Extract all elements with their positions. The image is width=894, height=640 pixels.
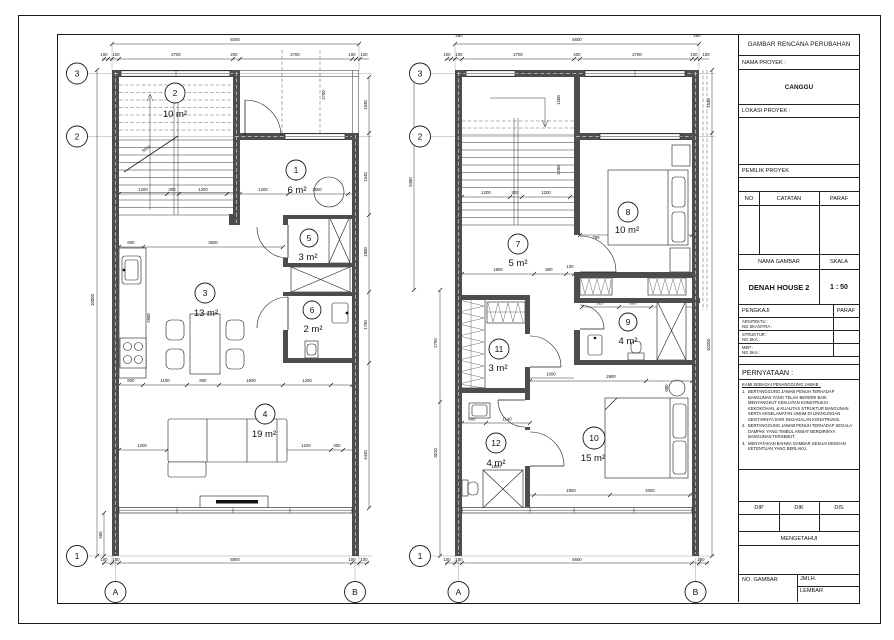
mep-ska-label: NO SKA :	[742, 350, 859, 355]
svg-text:2700: 2700	[321, 90, 326, 100]
pengkaji-row-mep: MEP : NO SKA :	[739, 344, 859, 357]
pengkaji-spacer	[739, 357, 859, 365]
no-gambar-label: NO. GAMBAR	[739, 575, 800, 602]
svg-text:200: 200	[230, 52, 238, 57]
mengetahui-row: MENGETAHUI	[739, 532, 859, 546]
pemilik-proyek-row: PEMILIK PROYEK	[739, 165, 859, 178]
right-stairs	[462, 98, 574, 225]
svg-text:1900: 1900	[566, 488, 576, 493]
svg-text:12: 12	[491, 438, 501, 448]
svg-text:100: 100	[100, 557, 108, 562]
svg-text:10 m²: 10 m²	[163, 109, 187, 120]
pengkaji-header-row: PENGKAJI PARAF	[739, 305, 859, 318]
pernyataan-item-3: 3. MENYATAKAN BAHWA GAMBAR SESUAI DENGAN…	[742, 441, 856, 452]
jmlh-label: JMLH.	[797, 575, 859, 587]
svg-text:2900: 2900	[606, 374, 616, 379]
pengkaji-label: PENGKAJI	[739, 305, 836, 317]
nama-proyek-row: NAMA PROYEK :	[739, 56, 859, 70]
svg-text:5800: 5800	[230, 557, 240, 562]
pengkaji-row-arsitektur: ARSITEKTU : NO SKA/STRA :	[739, 318, 859, 331]
svg-text:2: 2	[75, 132, 80, 142]
svg-text:1200: 1200	[137, 443, 147, 448]
svg-text:1630: 1630	[363, 100, 368, 110]
svg-text:3 m²: 3 m²	[299, 252, 318, 263]
svg-text:600: 600	[127, 240, 135, 245]
left-sofa	[168, 419, 287, 477]
pernyataan-item-1: 1. BERTANGGUNG JAWAB PENUH TERHADAP BANG…	[742, 389, 856, 422]
svg-text:6000: 6000	[230, 37, 240, 42]
svg-text:200: 200	[573, 52, 581, 57]
svg-text:6: 6	[310, 305, 315, 315]
svg-text:1200: 1200	[481, 190, 491, 195]
svg-text:3: 3	[75, 69, 80, 79]
svg-text:1630: 1630	[706, 98, 711, 108]
svg-text:600: 600	[127, 378, 135, 383]
project-name: CANGGU	[785, 84, 814, 91]
dik-label: DIK	[779, 502, 819, 514]
pernyataan-empty	[739, 470, 859, 502]
pengkaji-paraf-label: PARAF	[833, 305, 859, 317]
lokasi-proyek-row: LOKASI PROYEK :	[739, 105, 859, 118]
mengetahui-empty	[739, 546, 859, 575]
svg-text:1790: 1790	[363, 320, 368, 330]
svg-text:10: 10	[589, 433, 599, 443]
svg-text:1: 1	[75, 551, 80, 561]
svg-text:1000: 1000	[546, 372, 556, 377]
svg-text:1200: 1200	[541, 190, 551, 195]
left-walls	[112, 70, 359, 556]
left-stairs	[119, 85, 233, 215]
svg-text:1100: 1100	[160, 378, 170, 383]
svg-text:3: 3	[418, 69, 423, 79]
arsitektur-ska-label: NO SKA/STRA :	[742, 324, 859, 329]
svg-text:300: 300	[168, 187, 176, 192]
svg-text:2 m²: 2 m²	[304, 324, 323, 335]
sheet-title: GAMBAR RENCANA PERUBAHAN	[748, 41, 851, 48]
svg-text:280: 280	[697, 557, 705, 562]
svg-text:2: 2	[173, 88, 178, 98]
svg-text:1200: 1200	[556, 95, 561, 105]
svg-text:2280: 2280	[556, 165, 561, 175]
svg-text:6 m²: 6 m²	[288, 185, 307, 196]
svg-text:4440: 4440	[363, 450, 368, 460]
dis-label: DIS	[819, 502, 859, 514]
svg-text:2700: 2700	[632, 52, 642, 57]
nama-proyek-label: NAMA PROYEK :	[742, 60, 786, 66]
dip-label: DIP	[739, 502, 779, 514]
svg-text:5600: 5600	[572, 557, 582, 562]
svg-text:3450: 3450	[141, 144, 152, 154]
svg-text:3: 3	[203, 288, 208, 298]
svg-text:100: 100	[566, 264, 574, 269]
svg-text:100: 100	[702, 52, 710, 57]
catatan-header-row: NO CATATAN PARAF	[739, 192, 859, 206]
svg-text:100: 100	[112, 557, 120, 562]
svg-text:1640: 1640	[363, 172, 368, 182]
left-tv-console	[200, 496, 268, 508]
struktur-ska-label: NO SKA :	[742, 337, 859, 342]
drawing-sheet: 6000 100 100 2700 200 2700 100 100 100 1…	[0, 0, 894, 640]
mengetahui-label: MENGETAHUI	[781, 536, 818, 542]
col-no: NO	[739, 192, 759, 205]
nama-gambar-value-row: DENAH HOUSE 2 1 : 50	[739, 270, 859, 305]
svg-text:2700: 2700	[171, 52, 181, 57]
pemilik-proyek-label: PEMILIK PROYEK	[742, 168, 789, 174]
svg-text:1800: 1800	[493, 267, 503, 272]
svg-text:600: 600	[664, 384, 669, 392]
svg-text:100: 100	[360, 52, 368, 57]
right-bath9-fixtures	[588, 301, 686, 360]
pernyataan-label: PERNYATAAN :	[742, 368, 793, 377]
svg-text:1200: 1200	[258, 187, 268, 192]
svg-text:4: 4	[263, 409, 268, 419]
svg-text:5 m²: 5 m²	[509, 258, 528, 269]
svg-text:13 m²: 13 m²	[194, 308, 218, 319]
nama-proyek-value-cell: CANGGU	[739, 70, 859, 105]
left-plan: 6000 100 100 2700 200 2700 100 100 100 1…	[67, 37, 373, 603]
svg-text:B: B	[693, 587, 699, 597]
pernyataan-body: KAMI SEBAGAI PENANGGUNG JAWAB : 1. BERTA…	[739, 380, 859, 470]
sign-body-row	[739, 515, 859, 532]
svg-text:100: 100	[348, 52, 356, 57]
svg-text:10200: 10200	[706, 338, 711, 351]
pemilik-proyek-value-cell	[739, 178, 859, 192]
svg-text:1200: 1200	[198, 187, 208, 192]
drawing-name: DENAH HOUSE 2	[739, 270, 819, 304]
svg-text:1600: 1600	[246, 378, 256, 383]
right-closets8	[580, 278, 686, 295]
svg-text:7: 7	[516, 239, 521, 249]
svg-text:100: 100	[455, 557, 463, 562]
pernyataan-header: PERNYATAAN :	[739, 365, 859, 380]
svg-text:2700: 2700	[290, 52, 300, 57]
svg-text:10000: 10000	[90, 293, 95, 306]
pernyataan-subheader: KAMI SEBAGAI PENANGGUNG JAWAB :	[742, 382, 856, 387]
title-block: GAMBAR RENCANA PERUBAHAN NAMA PROYEK : C…	[738, 34, 859, 602]
sign-header-row: DIP DIK DIS	[739, 502, 859, 515]
svg-text:800: 800	[199, 378, 207, 383]
svg-text:3 m²: 3 m²	[489, 363, 508, 374]
skala-label: SKALA	[819, 255, 859, 269]
col-paraf: PARAF	[819, 192, 859, 205]
svg-text:2000: 2000	[645, 488, 655, 493]
svg-text:2700: 2700	[513, 52, 523, 57]
svg-text:280: 280	[693, 34, 701, 38]
svg-text:800: 800	[545, 267, 553, 272]
drawing-scale: 1 : 50	[819, 270, 859, 304]
plans-canvas: 6000 100 100 2700 200 2700 100 100 100 1…	[57, 34, 738, 603]
svg-text:1220: 1220	[301, 443, 311, 448]
svg-text:300: 300	[333, 443, 341, 448]
svg-text:9: 9	[626, 317, 631, 327]
svg-text:1200: 1200	[138, 187, 148, 192]
svg-text:19 m²: 19 m²	[252, 429, 276, 440]
svg-text:100: 100	[348, 557, 356, 562]
svg-text:4 m²: 4 m²	[487, 458, 506, 469]
left-kitchen	[119, 248, 146, 378]
lokasi-proyek-value-cell	[739, 118, 859, 165]
svg-text:100: 100	[443, 557, 451, 562]
svg-text:950: 950	[98, 531, 103, 539]
svg-text:2600: 2600	[146, 313, 151, 323]
svg-text:100: 100	[443, 52, 451, 57]
right-bed10	[605, 380, 688, 478]
lembar-label: LEMBAR	[797, 587, 859, 602]
svg-text:100: 100	[100, 52, 108, 57]
left-dining-set	[166, 314, 244, 374]
nama-gambar-label: NAMA GAMBAR	[739, 255, 819, 269]
col-catatan: CATATAN	[759, 192, 819, 205]
svg-text:100: 100	[455, 52, 463, 57]
lokasi-proyek-label: LOKASI PROYEK :	[742, 108, 790, 114]
svg-text:B: B	[352, 587, 358, 597]
svg-text:8: 8	[626, 207, 631, 217]
svg-text:2: 2	[418, 132, 423, 142]
pengkaji-row-struktur: STRUKTUR : NO SKA :	[739, 331, 859, 344]
title-block-header: GAMBAR RENCANA PERUBAHAN	[739, 34, 859, 56]
svg-text:A: A	[456, 587, 462, 597]
svg-text:10 m²: 10 m²	[615, 225, 639, 236]
pernyataan-item-2: 2. BERTANGGUNG JAWAB PENUH TERHADAP SEGA…	[742, 423, 856, 439]
svg-text:15 m²: 15 m²	[581, 453, 605, 464]
svg-text:1: 1	[294, 165, 299, 175]
nama-gambar-header-row: NAMA GAMBAR SKALA	[739, 255, 859, 270]
left-round-table	[314, 177, 344, 207]
svg-text:4 m²: 4 m²	[619, 336, 638, 347]
svg-text:5600: 5600	[572, 37, 582, 42]
svg-text:5: 5	[307, 233, 312, 243]
svg-text:1: 1	[418, 551, 423, 561]
svg-text:790: 790	[592, 235, 600, 240]
catatan-body	[739, 206, 859, 255]
svg-text:11: 11	[495, 344, 504, 354]
right-plan: 5600 280 280 100 100 2700 200 2700 100 1…	[408, 34, 715, 603]
svg-text:100: 100	[112, 52, 120, 57]
no-gambar-row: NO. GAMBAR JMLH. LEMBAR	[739, 575, 859, 602]
svg-text:3010: 3010	[433, 448, 438, 458]
svg-text:2790: 2790	[433, 338, 438, 348]
svg-text:100: 100	[360, 557, 368, 562]
svg-text:1800: 1800	[363, 247, 368, 257]
svg-text:5480: 5480	[408, 177, 413, 187]
svg-text:1200: 1200	[302, 378, 312, 383]
svg-text:A: A	[113, 587, 119, 597]
svg-text:100: 100	[690, 52, 698, 57]
svg-text:3500: 3500	[208, 240, 218, 245]
svg-text:280: 280	[455, 34, 463, 38]
